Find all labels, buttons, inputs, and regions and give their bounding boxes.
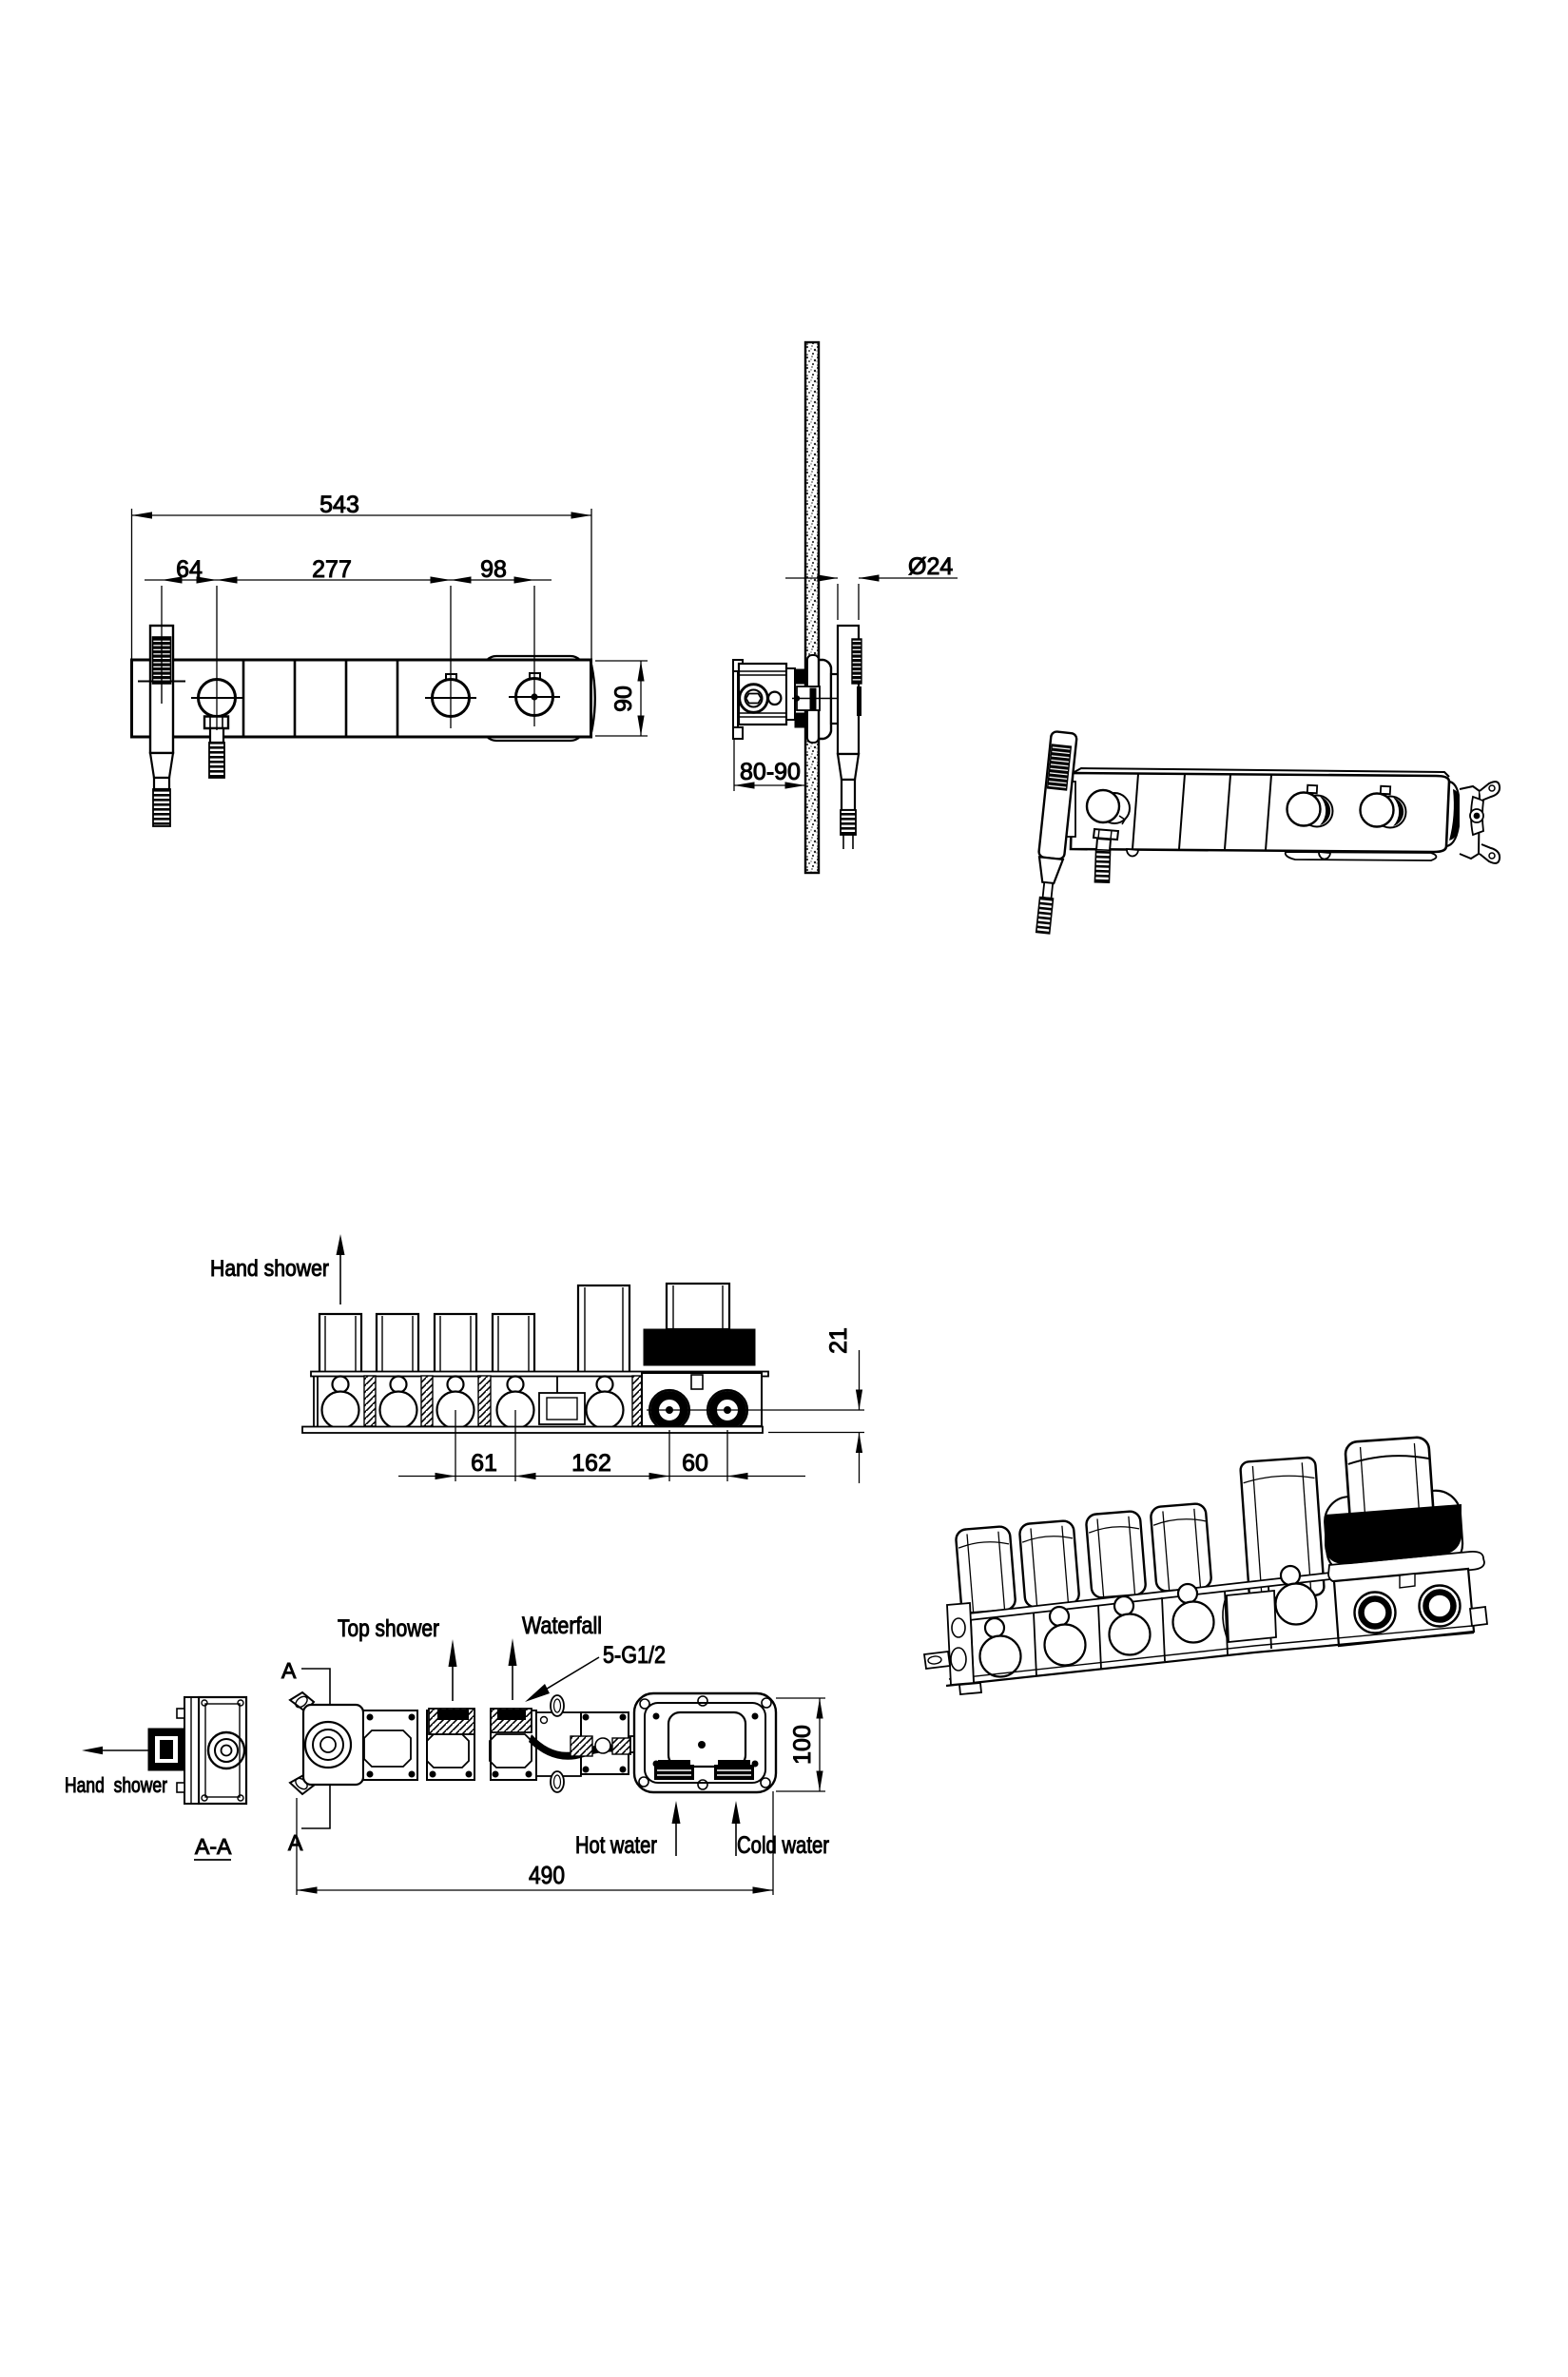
svg-text:A: A <box>281 1658 297 1683</box>
svg-text:98: 98 <box>480 556 507 583</box>
svg-text:Hot water: Hot water <box>575 1832 657 1859</box>
svg-text:Waterfall: Waterfall <box>522 1613 602 1639</box>
svg-text:Top shower: Top shower <box>338 1615 439 1642</box>
svg-text:80-90: 80-90 <box>740 759 801 785</box>
svg-text:5-G1/2: 5-G1/2 <box>603 1642 666 1669</box>
svg-text:A-A: A-A <box>195 1834 232 1859</box>
svg-text:100: 100 <box>789 1725 816 1765</box>
svg-text:61: 61 <box>471 1450 497 1477</box>
svg-text:60: 60 <box>682 1450 708 1477</box>
svg-text:A: A <box>288 1830 303 1855</box>
svg-text:Cold water: Cold water <box>737 1832 829 1859</box>
svg-text:Hand shower: Hand shower <box>65 1773 167 1797</box>
svg-text:64: 64 <box>176 556 203 583</box>
svg-text:90: 90 <box>610 686 637 712</box>
svg-text:Hand shower: Hand shower <box>210 1256 329 1282</box>
svg-text:490: 490 <box>529 1861 565 1889</box>
svg-text:277: 277 <box>312 556 352 583</box>
svg-text:543: 543 <box>319 492 359 518</box>
svg-text:21: 21 <box>825 1327 852 1354</box>
svg-text:162: 162 <box>571 1450 611 1477</box>
svg-text:Ø24: Ø24 <box>908 553 953 580</box>
